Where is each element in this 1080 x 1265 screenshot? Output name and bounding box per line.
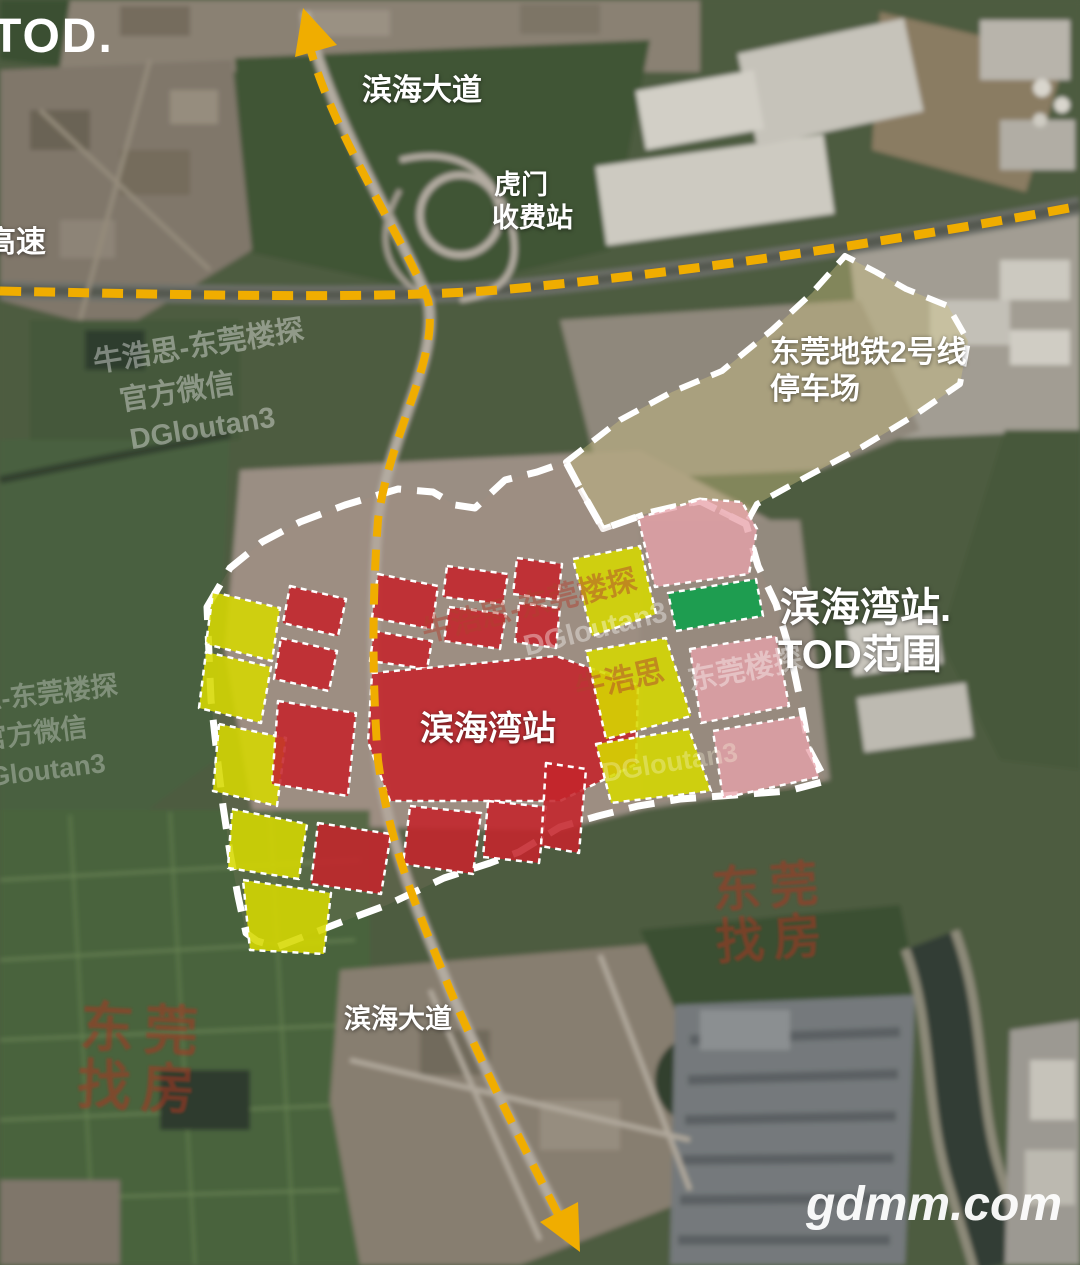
site-watermark: gdmm.com bbox=[805, 1178, 1062, 1231]
svg-text:房: 房 bbox=[771, 909, 823, 966]
humen-toll-label-1: 虎门 bbox=[494, 170, 548, 200]
parcel-yellow-5 bbox=[243, 880, 331, 954]
parcel-red-11 bbox=[403, 806, 481, 874]
svg-text:找: 找 bbox=[76, 1055, 133, 1118]
parcel-red-12 bbox=[483, 801, 546, 863]
metro-depot-label-1: 东莞地铁2号线 bbox=[770, 335, 967, 369]
svg-text:房: 房 bbox=[139, 1058, 196, 1121]
svg-text:莞: 莞 bbox=[768, 857, 820, 914]
satellite-map: TOD. 高速 滨海大道 虎门 收费站 东莞地铁2号线 停车场 滨海湾站. TO… bbox=[0, 0, 1080, 1265]
binhai-avenue-label-bottom: 滨海大道 bbox=[344, 1003, 452, 1034]
expressway-label: 高速 bbox=[0, 226, 46, 259]
parcel-red-3 bbox=[272, 701, 356, 796]
binhai-avenue-label-top: 滨海大道 bbox=[362, 73, 482, 107]
svg-text:东: 东 bbox=[710, 861, 762, 918]
metro-depot-label-2: 停车场 bbox=[770, 372, 860, 406]
storage-tank bbox=[1033, 79, 1051, 97]
tod-range-label-1: 滨海湾站. bbox=[780, 585, 951, 630]
parcel-red-4 bbox=[311, 823, 391, 894]
svg-text:找: 找 bbox=[714, 913, 767, 970]
svg-text:莞: 莞 bbox=[143, 1000, 200, 1063]
tod-logo: TOD. bbox=[0, 10, 114, 63]
parcel-red-13 bbox=[541, 763, 586, 853]
station-parcel-label: 滨海湾站 bbox=[420, 709, 556, 748]
svg-text:东: 东 bbox=[79, 997, 136, 1060]
humen-toll-label-2: 收费站 bbox=[492, 203, 573, 233]
